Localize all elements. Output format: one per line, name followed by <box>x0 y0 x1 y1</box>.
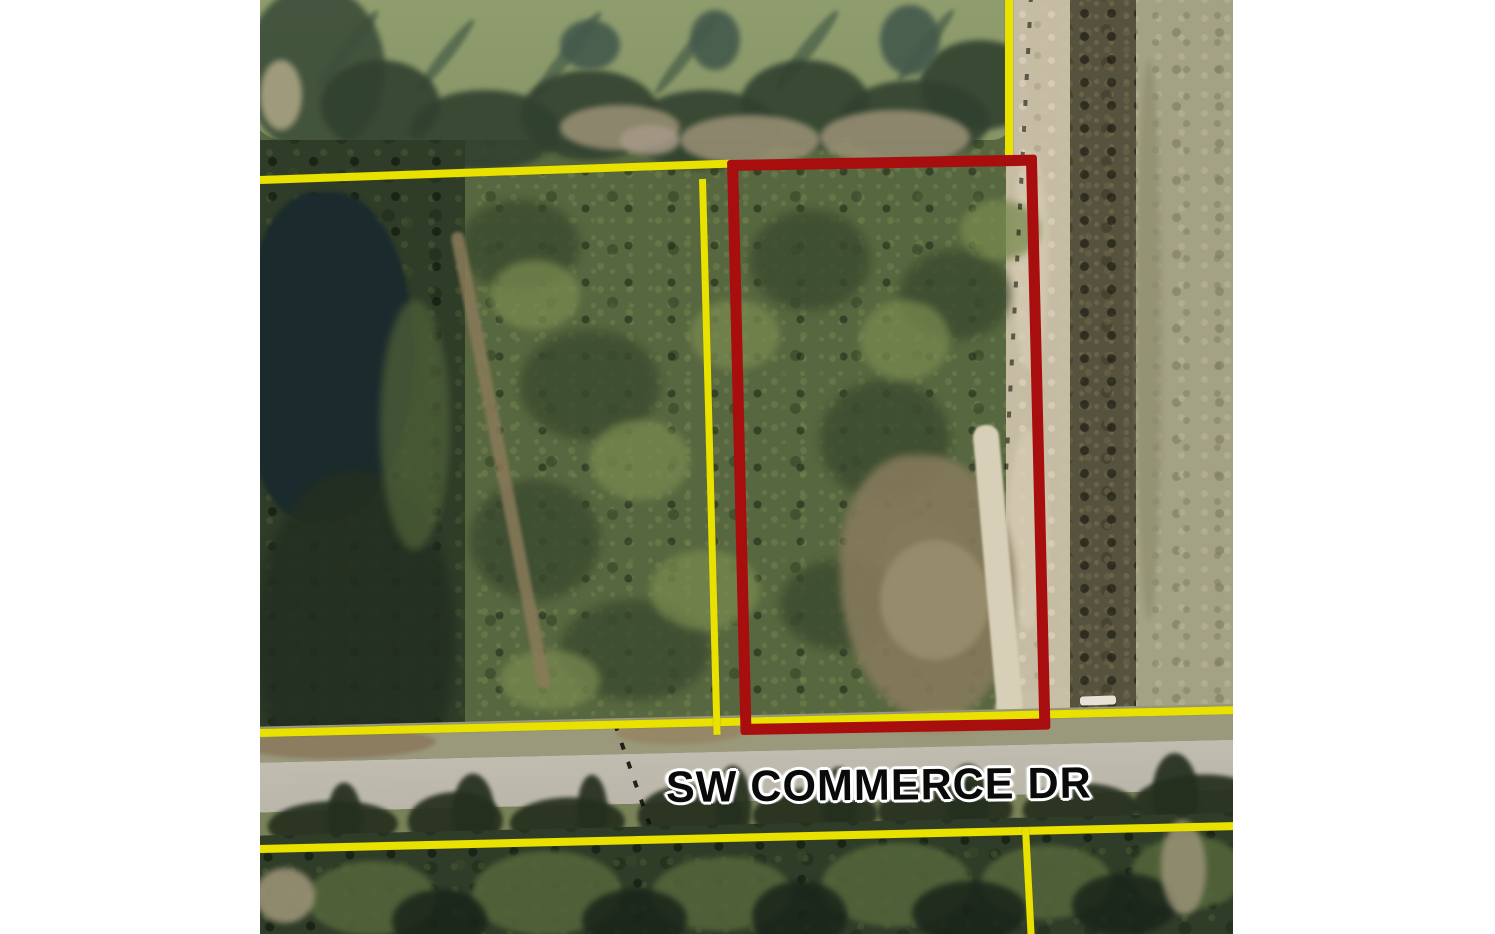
vegetation-patch <box>470 480 600 600</box>
aerial-photo: SW COMMERCE DR <box>260 0 1233 934</box>
scrub-patch <box>620 125 680 155</box>
hedgerow <box>1070 0 1138 718</box>
parcel-boundary-line-northeast <box>1005 0 1013 161</box>
vehicle <box>1080 695 1116 705</box>
vegetation-patch <box>490 260 580 330</box>
street-label: SW COMMERCE DR <box>666 759 1092 813</box>
highlighted-parcel-outline <box>727 155 1050 735</box>
parcel-map: SW COMMERCE DR <box>0 0 1495 934</box>
vegetation-patch <box>880 5 940 75</box>
grass-streak <box>1136 60 1162 620</box>
vegetation-patch <box>590 420 690 500</box>
vegetation-patch <box>380 300 450 550</box>
scrub-patch <box>680 115 820 165</box>
vegetation-patch <box>560 20 620 70</box>
scrub-patch <box>260 60 302 130</box>
vegetation-patch <box>690 10 740 70</box>
